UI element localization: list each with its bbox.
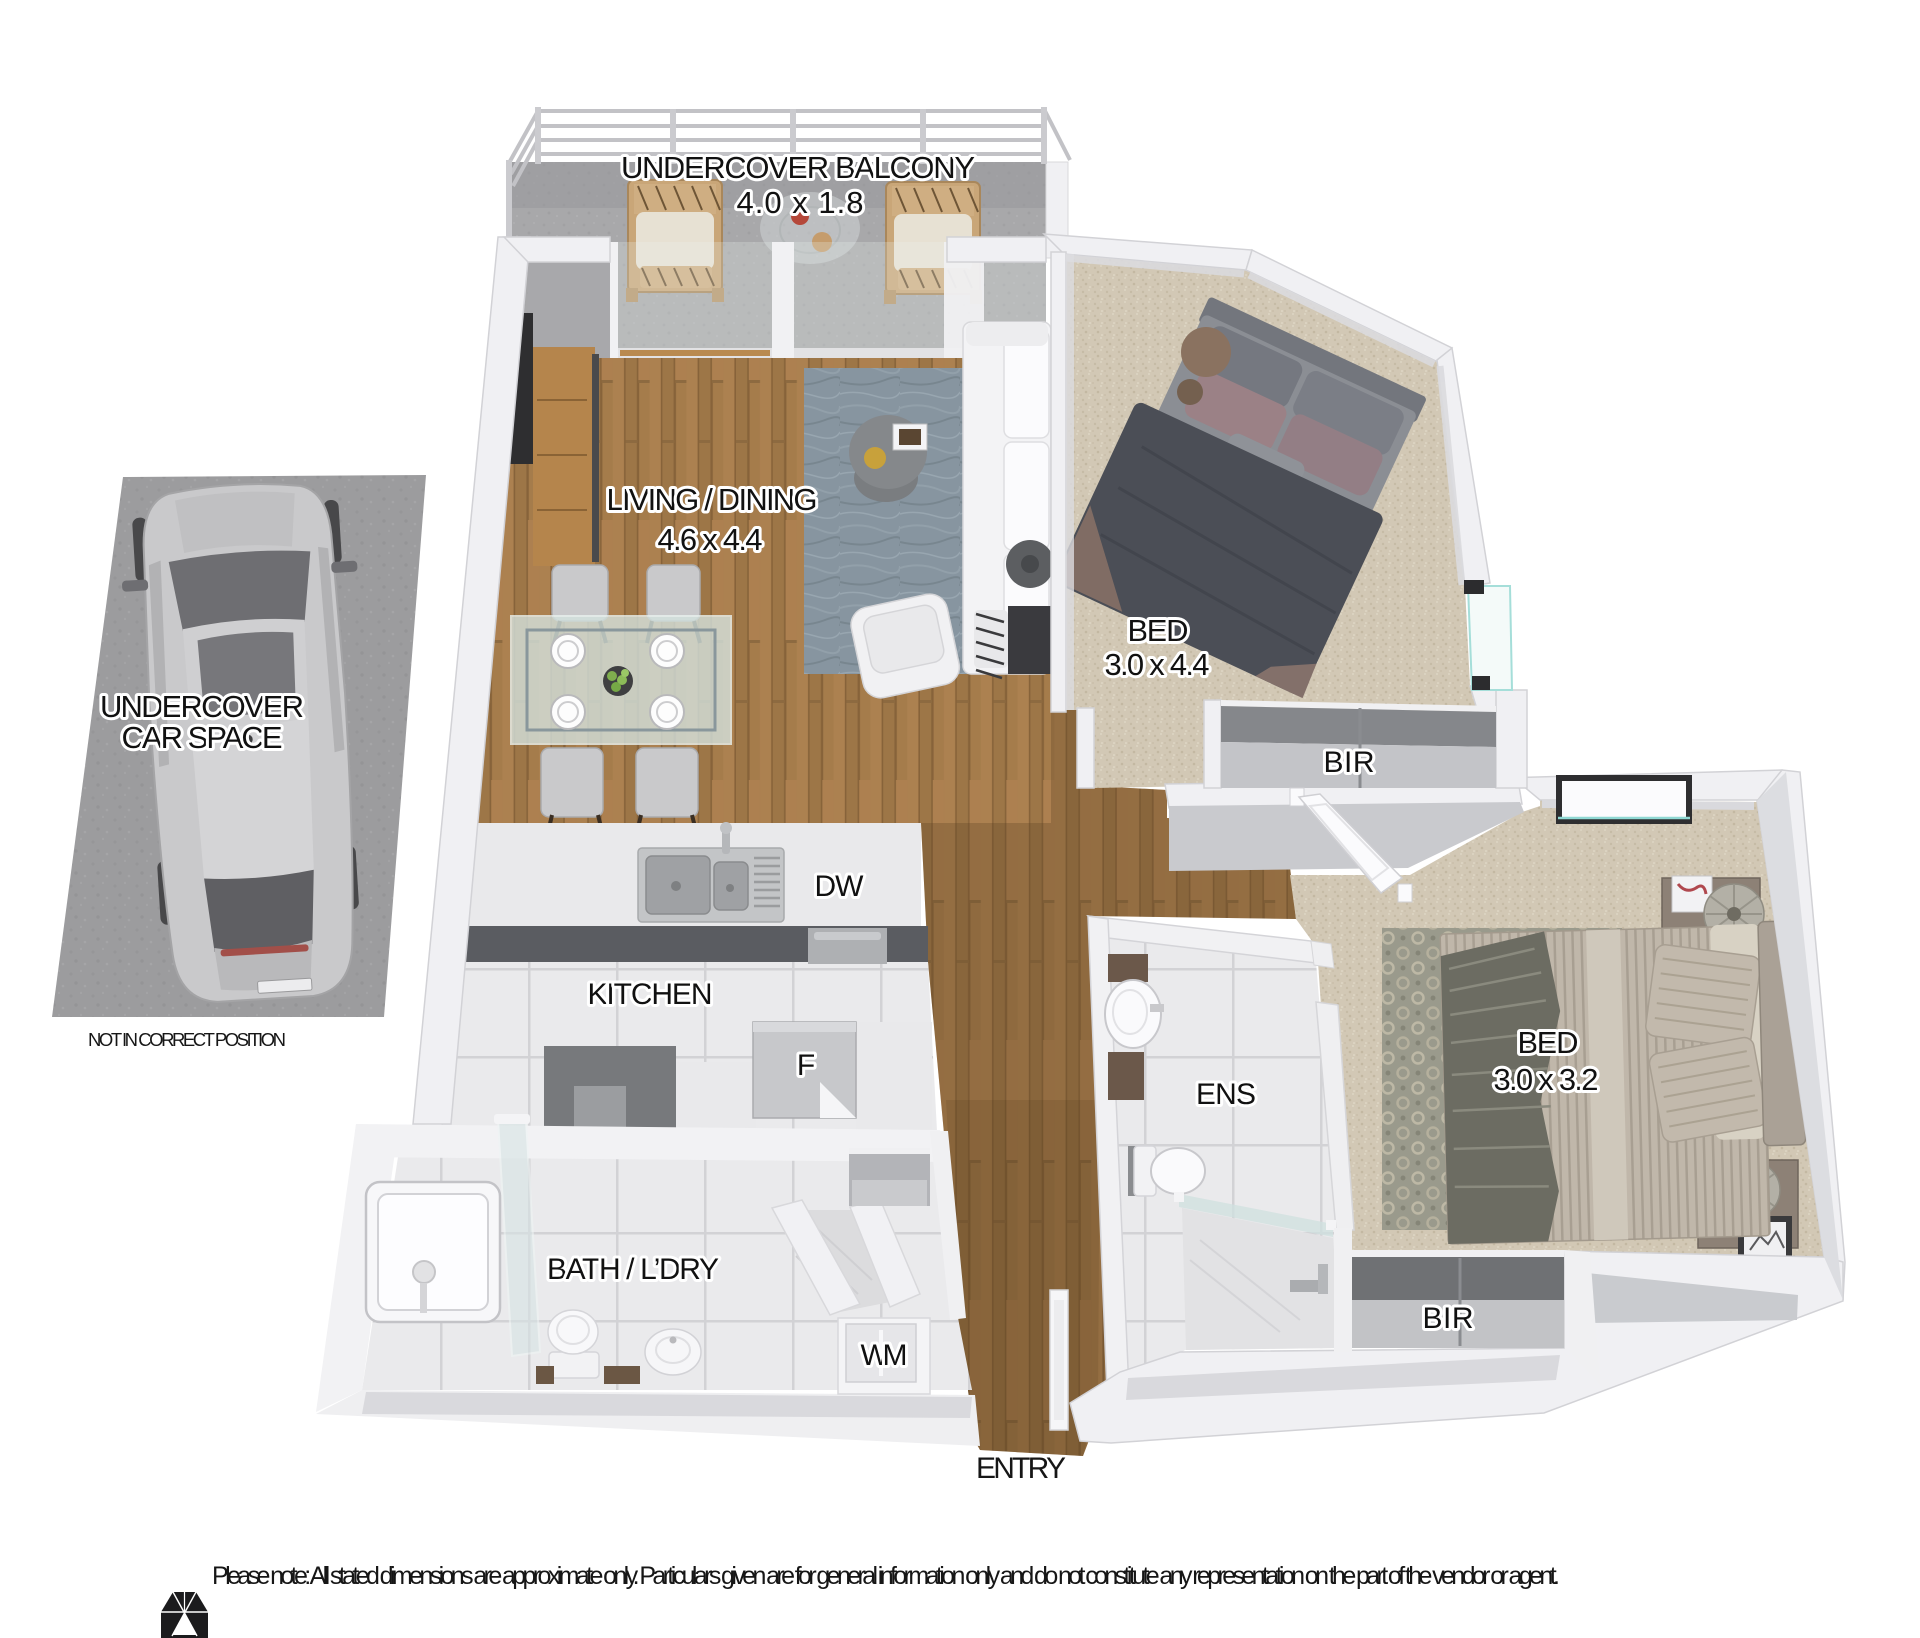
svg-text:Please note: All stated dimens: Please note: All stated dimensions are a… <box>212 1562 1560 1590</box>
svg-text:BED: BED <box>1128 613 1189 648</box>
svg-text:ENTRY: ENTRY <box>976 1452 1066 1485</box>
svg-text:UNDERCOVER: UNDERCOVER <box>100 689 304 724</box>
svg-text:DW: DW <box>815 870 865 903</box>
svg-text:KITCHEN: KITCHEN <box>588 978 713 1011</box>
svg-text:BED: BED <box>1518 1025 1579 1060</box>
svg-text:F: F <box>797 1049 815 1082</box>
svg-text:4.0 x 1.8: 4.0 x 1.8 <box>737 185 864 220</box>
svg-text:3.0 x 3.2: 3.0 x 3.2 <box>1494 1062 1599 1097</box>
svg-text:CAR SPACE: CAR SPACE <box>122 720 283 755</box>
svg-text:UNDERCOVER BALCONY: UNDERCOVER BALCONY <box>621 150 975 185</box>
svg-text:NOT IN CORRECT POSITION: NOT IN CORRECT POSITION <box>88 1029 286 1050</box>
svg-text:LIVING / DINING: LIVING / DINING <box>607 482 818 517</box>
svg-text:ENS: ENS <box>1196 1078 1256 1111</box>
svg-text:BATH / L’DRY: BATH / L’DRY <box>547 1253 719 1286</box>
svg-text:WM: WM <box>861 1339 908 1372</box>
svg-text:BIR: BIR <box>1324 746 1375 779</box>
svg-text:4.6 x 4.4: 4.6 x 4.4 <box>658 522 763 557</box>
svg-text:BIR: BIR <box>1423 1302 1474 1335</box>
svg-text:3.0 x 4.4: 3.0 x 4.4 <box>1105 647 1210 682</box>
